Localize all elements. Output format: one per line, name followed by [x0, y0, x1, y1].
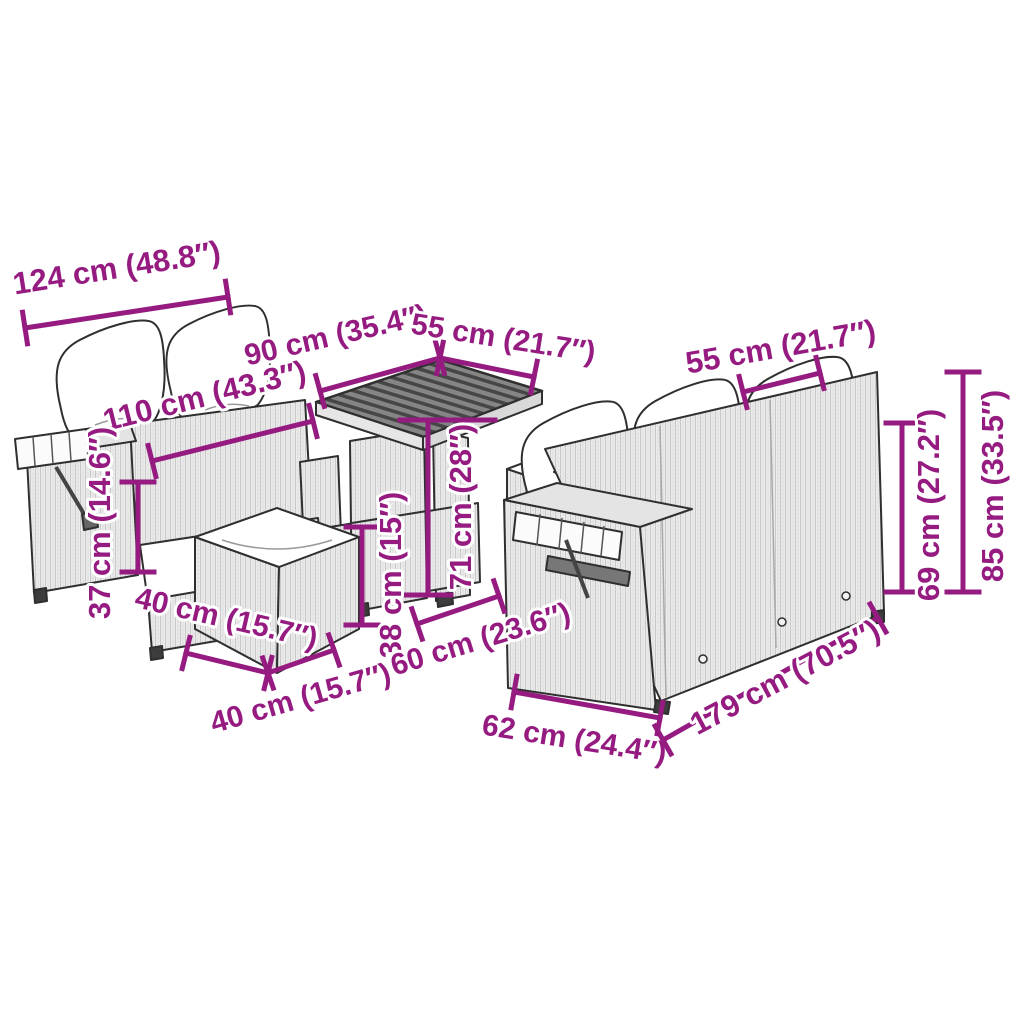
- dimension-table-height-label: 71 cm (28″): [443, 424, 478, 591]
- panel-rivet: [778, 618, 786, 626]
- dimension-table-shelf-height-label: 38 cm (15″): [373, 492, 408, 659]
- panel-rivet: [699, 655, 707, 663]
- panel-rivet: [842, 592, 850, 600]
- dimension-sofa3-total-height-label: 85 cm (33.5″): [975, 390, 1010, 582]
- sofa2-foot: [150, 646, 163, 660]
- dimension-sofa3-back-height-label: 69 cm (27.2″): [911, 409, 946, 601]
- sofa2-foot: [34, 588, 47, 603]
- dimension-sofa2-seat-height-label: 37 cm (14.6″): [82, 427, 117, 619]
- furniture-dimension-diagram: 124 cm (48.8″)110 cm (43.3″)90 cm (35.4″…: [0, 0, 1024, 1024]
